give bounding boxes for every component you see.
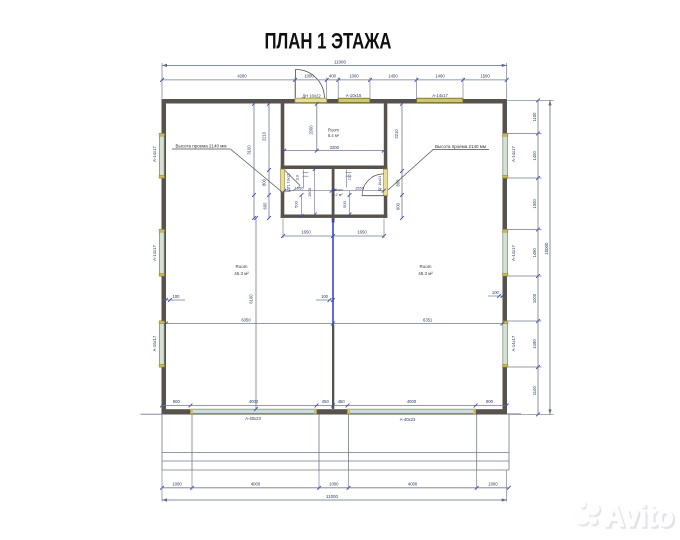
svg-text:А-14х17: А-14х17 bbox=[511, 146, 516, 162]
svg-text:ДГ 10х21: ДГ 10х21 bbox=[378, 176, 382, 191]
svg-text:4280: 4280 bbox=[237, 74, 247, 79]
svg-text:1000: 1000 bbox=[304, 74, 314, 79]
svg-text:48.3 м²: 48.3 м² bbox=[418, 271, 433, 276]
svg-text:Room: Room bbox=[328, 128, 340, 133]
svg-text:600: 600 bbox=[396, 202, 401, 210]
svg-text:11000: 11000 bbox=[326, 494, 338, 499]
svg-text:4000: 4000 bbox=[251, 482, 261, 487]
svg-text:11000: 11000 bbox=[334, 60, 346, 65]
svg-text:А-14х17: А-14х17 bbox=[511, 335, 516, 351]
svg-text:110: 110 bbox=[348, 174, 352, 180]
svg-text:4.2 м²: 4.2 м² bbox=[332, 193, 343, 197]
svg-text:1000: 1000 bbox=[349, 74, 359, 79]
svg-text:900: 900 bbox=[173, 399, 181, 404]
svg-text:ДН 10х22: ДН 10х22 bbox=[302, 93, 321, 98]
svg-text:А-16х17: А-16х17 bbox=[152, 335, 157, 351]
svg-text:1000: 1000 bbox=[329, 482, 339, 487]
svg-text:1000: 1000 bbox=[172, 482, 182, 487]
svg-text:100: 100 bbox=[492, 290, 500, 295]
svg-text:4000: 4000 bbox=[407, 399, 417, 404]
svg-text:1490: 1490 bbox=[532, 247, 537, 257]
svg-text:500: 500 bbox=[294, 200, 299, 207]
svg-text:8.4 м²: 8.4 м² bbox=[328, 133, 340, 138]
svg-text:Room: Room bbox=[419, 264, 431, 269]
svg-text:ПЛАН 1 ЭТАЖА: ПЛАН 1 ЭТАЖА bbox=[265, 29, 392, 54]
svg-text:А-40х23: А-40х23 bbox=[400, 417, 416, 422]
svg-text:1100: 1100 bbox=[532, 112, 537, 122]
svg-text:1650: 1650 bbox=[301, 230, 311, 235]
svg-text:100: 100 bbox=[173, 294, 181, 299]
svg-text:ДГ1 10х21: ДГ1 10х21 bbox=[286, 173, 290, 190]
svg-text:800: 800 bbox=[262, 178, 267, 186]
svg-text:Высота проема 2140 мм: Высота проема 2140 мм bbox=[176, 143, 227, 148]
svg-text:600: 600 bbox=[263, 202, 268, 210]
svg-text:2000: 2000 bbox=[309, 125, 314, 135]
svg-text:450: 450 bbox=[338, 399, 346, 404]
svg-text:1100: 1100 bbox=[532, 386, 537, 396]
svg-text:2210: 2210 bbox=[262, 131, 267, 141]
svg-text:3200: 3200 bbox=[330, 145, 340, 150]
svg-text:1650: 1650 bbox=[357, 230, 367, 235]
svg-text:6351: 6351 bbox=[423, 318, 433, 323]
svg-text:6100: 6100 bbox=[248, 294, 253, 304]
svg-text:100: 100 bbox=[321, 294, 329, 299]
svg-text:4000: 4000 bbox=[408, 482, 418, 487]
svg-text:1500: 1500 bbox=[307, 187, 312, 197]
svg-text:А-10х15: А-10х15 bbox=[346, 93, 362, 98]
svg-text:6350: 6350 bbox=[241, 318, 251, 323]
svg-text:3100: 3100 bbox=[246, 145, 251, 155]
svg-text:1550: 1550 bbox=[295, 185, 305, 190]
svg-text:А-40х23: А-40х23 bbox=[245, 416, 261, 421]
svg-text:2210: 2210 bbox=[394, 129, 399, 139]
svg-text:А-14х17: А-14х17 bbox=[432, 93, 448, 98]
svg-text:900: 900 bbox=[486, 399, 494, 404]
svg-text:А-14х17: А-14х17 bbox=[152, 245, 157, 261]
svg-text:1450: 1450 bbox=[388, 74, 398, 79]
svg-text:400: 400 bbox=[329, 74, 337, 79]
svg-text:1000: 1000 bbox=[532, 293, 537, 303]
svg-text:1550: 1550 bbox=[355, 185, 365, 190]
svg-text:Room: Room bbox=[235, 264, 247, 269]
svg-text:10000: 10000 bbox=[544, 242, 549, 255]
svg-text:Room: Room bbox=[332, 188, 342, 192]
svg-text:А-14х17: А-14х17 bbox=[152, 146, 157, 162]
svg-text:110: 110 bbox=[295, 175, 299, 181]
svg-text:1000: 1000 bbox=[488, 482, 498, 487]
svg-text:А-14х17: А-14х17 bbox=[511, 245, 516, 261]
svg-text:Высота проема 2140 мм: Высота проема 2140 мм bbox=[435, 144, 486, 149]
svg-text:4000: 4000 bbox=[249, 399, 259, 404]
svg-text:1500: 1500 bbox=[480, 74, 490, 79]
svg-text:450: 450 bbox=[322, 399, 330, 404]
svg-text:1000: 1000 bbox=[532, 198, 537, 208]
svg-text:Avito: Avito bbox=[604, 498, 674, 533]
svg-text:1400: 1400 bbox=[435, 74, 445, 79]
svg-text:1490: 1490 bbox=[532, 339, 537, 349]
svg-text:1400: 1400 bbox=[532, 150, 537, 160]
svg-text:46.3 м²: 46.3 м² bbox=[234, 271, 249, 276]
svg-text:500: 500 bbox=[342, 200, 347, 207]
